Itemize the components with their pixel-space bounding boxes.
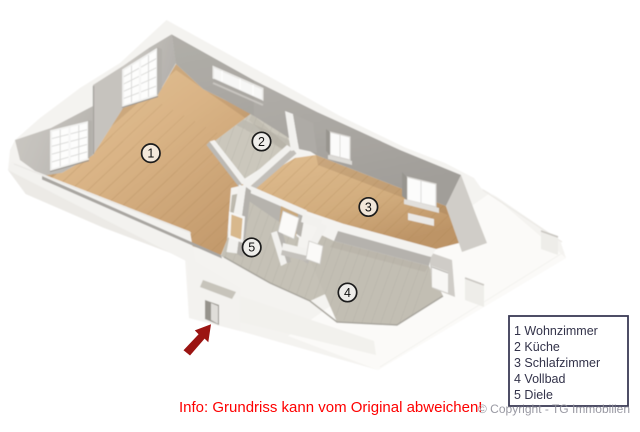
svg-text:Info: Grundriss kann vom Origi: Info: Grundriss kann vom Original abweic… xyxy=(179,399,482,416)
svg-text:2: 2 xyxy=(258,135,265,149)
svg-text:4: 4 xyxy=(344,286,351,300)
svg-text:5 Diele: 5 Diele xyxy=(514,388,553,402)
svg-text:© Copyright - TG Immobilien: © Copyright - TG Immobilien xyxy=(478,402,630,416)
svg-text:3: 3 xyxy=(365,200,372,214)
svg-text:1 Wohnzimmer: 1 Wohnzimmer xyxy=(514,324,598,338)
svg-text:3 Schlafzimmer: 3 Schlafzimmer xyxy=(514,356,600,370)
svg-text:5: 5 xyxy=(248,241,255,255)
svg-text:4 Vollbad: 4 Vollbad xyxy=(514,372,565,386)
svg-text:1: 1 xyxy=(147,147,154,161)
svg-text:2 Küche: 2 Küche xyxy=(514,340,560,354)
